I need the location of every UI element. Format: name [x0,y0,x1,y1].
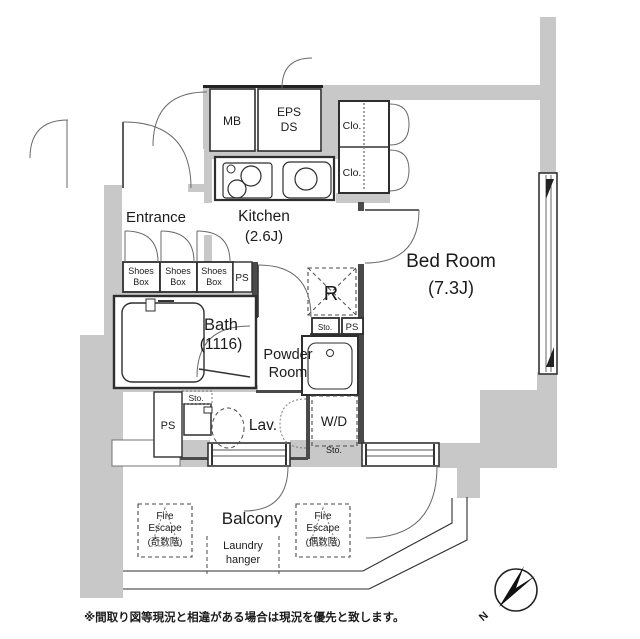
label-sto-toilet: Sto. [188,393,203,403]
closet-stack [339,101,409,193]
label-fire-escape-left: (奇数階) [148,536,183,548]
label-shoes-box: Box [170,277,186,287]
kitchen-sink [283,162,331,198]
label-closet-bottom: Clo. [343,167,362,179]
label-ps-entrance: PS [235,273,249,284]
label-shoes-box: Shoes [165,266,191,276]
floor-plan-note: ※間取り図等現況と相違がある場合は現況を優先と致します。 [84,610,405,624]
room-label-powder: Room [269,365,308,381]
powder-room-door [258,265,311,317]
label-fire-escape-left: Fire [156,511,174,522]
kitchen-counter [215,157,334,200]
label-shoes-box: Box [206,277,222,287]
shower-mixer [146,299,155,311]
bathtub [122,303,204,382]
eps-door [282,58,312,88]
label-sto-hall: Sto. [318,323,332,332]
room-label-lav: Lav. [249,417,277,434]
label-eps: EPS [277,105,301,119]
floor-plan-drawing: MB EPS DS Clo. Clo. Entrance Kitchen (2.… [0,0,640,639]
label-fire-escape-right: (偶数階) [306,536,341,548]
label-laundry-hanger: Laundry [223,540,263,552]
entrance-door [123,122,191,188]
label-shoes-box: Shoes [201,266,227,276]
bedroom-balcony-door-swing [366,466,437,538]
label-shoes-box: Box [133,277,149,287]
label-fire-escape-right: Escape [306,523,340,534]
label-shoes-box: Shoes [128,266,154,276]
floor-plan: MB EPS DS Clo. Clo. Entrance Kitchen (2.… [0,0,640,639]
label-mb: MB [223,114,241,128]
bedroom-balcony-door [362,443,439,466]
room-label-entrance: Entrance [126,209,186,226]
meter-box-door [153,92,207,146]
label-fire-escape-right: Fire [314,511,332,522]
room-label-powder: Powder [263,347,312,363]
room-label-bedroom: Bed Room [406,251,496,272]
neighbor-door [30,120,68,188]
room-size-bath: (1116) [200,336,243,353]
bedroom-side-window [539,173,557,374]
room-size-bedroom: (7.3J) [428,278,474,298]
lav-balcony-door-swing [244,466,288,511]
label-fire-escape-left: Escape [148,523,182,534]
shoes-box-doors [125,231,230,262]
compass: N [477,566,537,624]
label-ps-hall: PS [346,322,359,333]
label-ps-room: PS [161,420,176,432]
room-size-kitchen: (2.6J) [245,228,283,245]
room-label-kitchen: Kitchen [238,208,290,225]
label-refrigerator: R [324,283,338,305]
compass-north-label: N [477,610,491,624]
lav-balcony-door [208,443,290,466]
room-label-bath: Bath [204,316,238,334]
stove [223,163,272,198]
label-sto-wd: Sto. [326,445,342,455]
washbasin [302,336,358,395]
label-closet-top: Clo. [343,120,362,132]
room-label-balcony: Balcony [222,509,283,528]
label-washer-dryer: W/D [321,414,347,429]
label-ds: DS [281,120,298,134]
fixtures [114,87,409,458]
label-laundry-hanger: hanger [226,554,261,566]
